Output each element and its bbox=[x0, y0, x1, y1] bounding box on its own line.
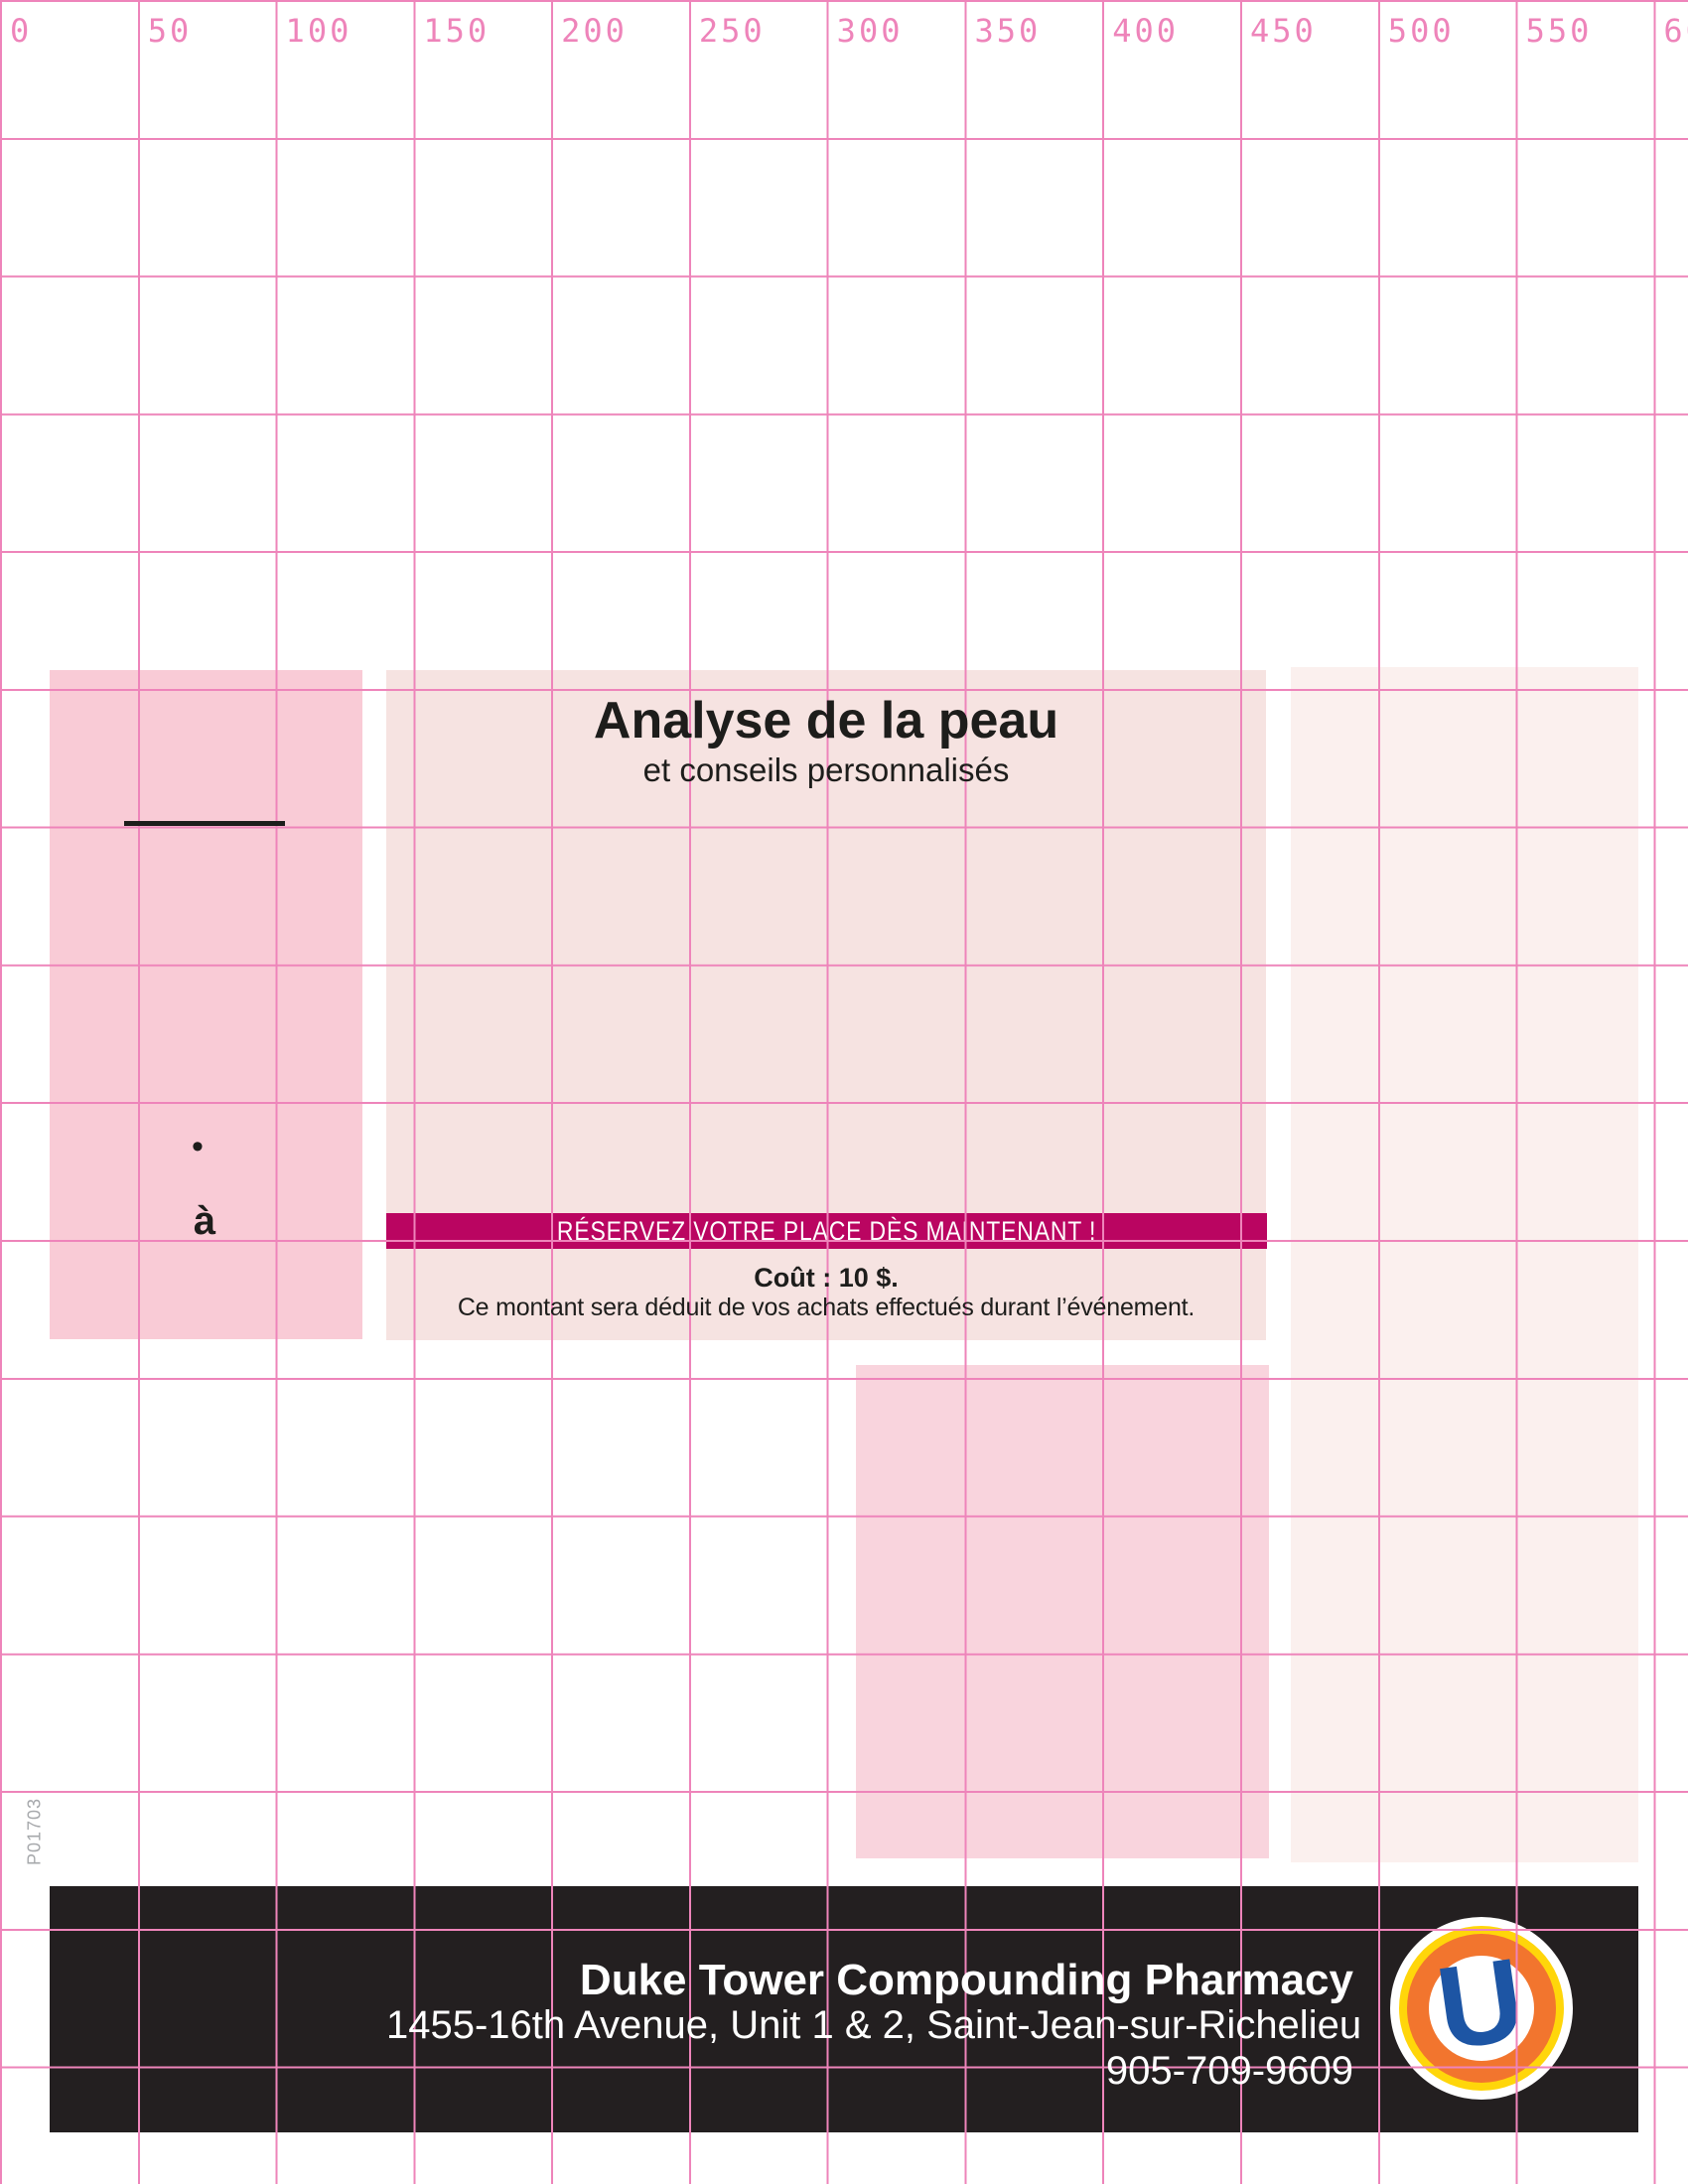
reservation-banner: RÉSERVEZ VOTRE PLACE DÈS MAINTENANT ! bbox=[386, 1213, 1267, 1249]
print-slug-code: P01703 bbox=[25, 1798, 46, 1865]
ruler-label-200: 200 bbox=[561, 12, 628, 50]
a-label: à bbox=[185, 1199, 224, 1244]
pharmacy-name: Duke Tower Compounding Pharmacy bbox=[386, 1958, 1353, 2003]
ruler-label-250: 250 bbox=[699, 12, 766, 50]
logo-inner-disc: U bbox=[1429, 1956, 1534, 2061]
poster-subtitle: et conseils personnalisés bbox=[386, 751, 1266, 789]
reservation-banner-text: RÉSERVEZ VOTRE PLACE DÈS MAINTENANT ! bbox=[557, 1216, 1096, 1247]
right-pale-column bbox=[1291, 667, 1638, 1862]
ruler-label-500: 500 bbox=[1388, 12, 1455, 50]
lower-pink-block bbox=[856, 1365, 1269, 1858]
ruler-scale: 050100150200250300350400450500550600 bbox=[0, 0, 1688, 60]
ruler-label-450: 450 bbox=[1250, 12, 1317, 50]
ruler-label-550: 550 bbox=[1526, 12, 1593, 50]
poster-title: Analyse de la peau bbox=[386, 691, 1266, 751]
note-line: Ce montant sera déduit de vos achats eff… bbox=[386, 1294, 1266, 1322]
cost-line: Coût : 10 $. bbox=[386, 1263, 1266, 1294]
footer-text: Duke Tower Compounding Pharmacy 1455-16t… bbox=[386, 1958, 1353, 2094]
ruler-label-300: 300 bbox=[837, 12, 904, 50]
ruler-label-150: 150 bbox=[423, 12, 490, 50]
uniprix-logo: U bbox=[1390, 1917, 1573, 2100]
bullet-dot: • bbox=[192, 1128, 204, 1166]
ruler-label-0: 0 bbox=[10, 12, 32, 50]
ruler-label-600: 600 bbox=[1663, 12, 1688, 50]
ruler-label-350: 350 bbox=[974, 12, 1041, 50]
ruler-label-100: 100 bbox=[286, 12, 352, 50]
pharmacy-address: 1455-16th Avenue, Unit 1 & 2, Saint-Jean… bbox=[386, 2003, 1353, 2048]
dash-line bbox=[124, 821, 285, 826]
ruler-label-50: 50 bbox=[148, 12, 193, 50]
logo-u-letter: U bbox=[1431, 1941, 1531, 2069]
proof-page: RÉSERVEZ VOTRE PLACE DÈS MAINTENANT ! Du… bbox=[0, 0, 1688, 2184]
pharmacy-phone: 905-709-9609 bbox=[386, 2048, 1353, 2094]
ruler-label-400: 400 bbox=[1112, 12, 1179, 50]
